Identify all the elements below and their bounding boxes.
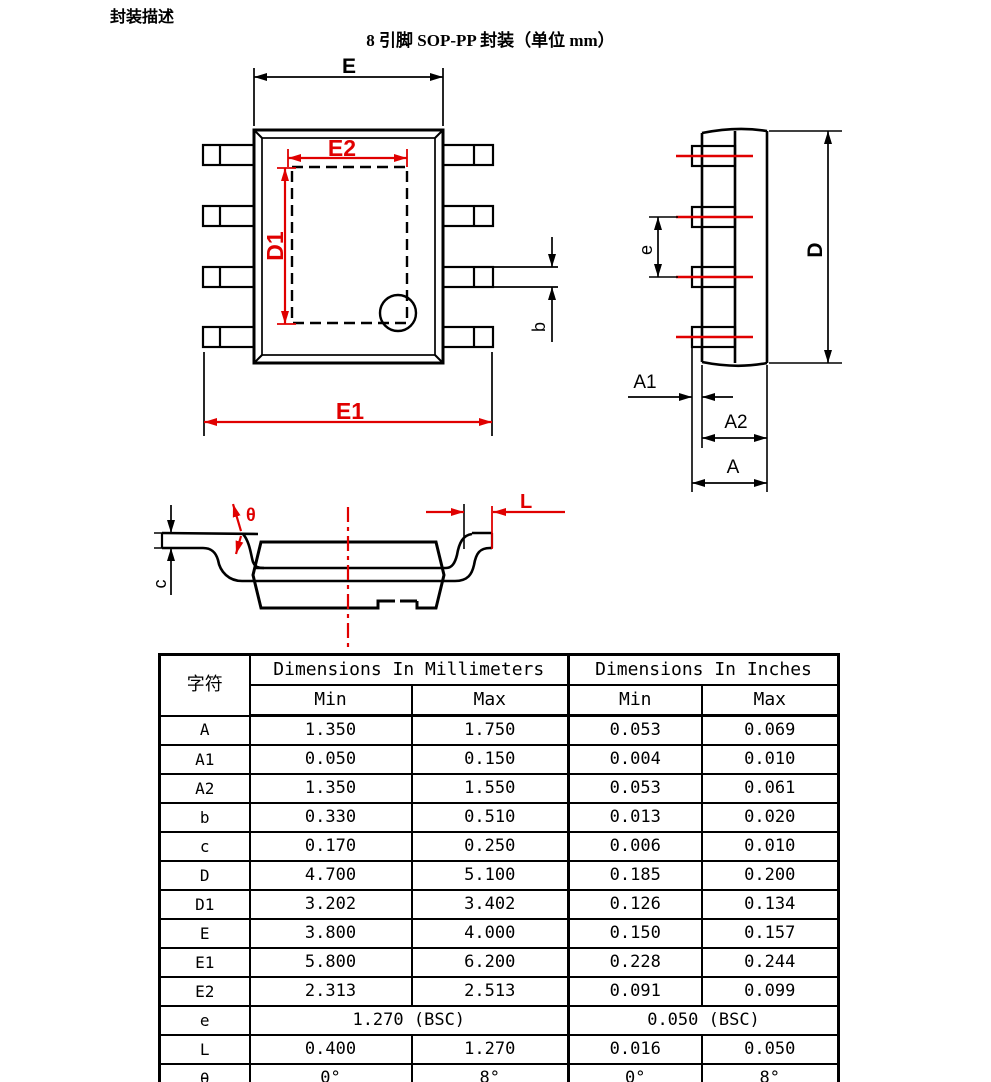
dimension-A1: A1 (628, 372, 733, 397)
value-cell: 3.402 (412, 890, 569, 919)
value-cell: 0.330 (250, 803, 412, 832)
left-pins (203, 145, 254, 347)
page-subtitle: 8 引脚 SOP-PP 封装（单位 mm） (0, 26, 981, 51)
col-header-mm-min: Min (250, 685, 412, 716)
value-cell: 0.013 (569, 803, 702, 832)
value-cell: 0° (569, 1064, 702, 1082)
pin-center-lines (676, 156, 753, 337)
value-cell: 0.244 (702, 948, 839, 977)
value-cell: 0.157 (702, 919, 839, 948)
symbol-cell: D1 (160, 890, 250, 919)
dim-label-e: e (636, 245, 656, 255)
value-cell: 0.050 (250, 745, 412, 774)
value-cell: 2.513 (412, 977, 569, 1006)
value-cell: 0.061 (702, 774, 839, 803)
top-view-drawing: E b (150, 50, 580, 450)
dimensions-table: 字符 Dimensions In Millimeters Dimensions … (158, 653, 840, 1082)
value-cell: 0.010 (702, 745, 839, 774)
value-cell: 0.053 (569, 774, 702, 803)
side-view-drawing: e D A1 A2 A (615, 115, 850, 500)
col-header-in-min: Min (569, 685, 702, 716)
value-cell-span: 0.050 (BSC) (569, 1006, 839, 1035)
right-lead (446, 533, 492, 581)
value-cell: 0.004 (569, 745, 702, 774)
table-row: E 3.800 4.000 0.150 0.157 (160, 919, 839, 948)
value-cell: 0.510 (412, 803, 569, 832)
dimension-E2: E2 (288, 135, 407, 167)
dim-label-A2: A2 (724, 412, 747, 433)
symbol-cell: E2 (160, 977, 250, 1006)
symbol-cell: e (160, 1006, 250, 1035)
table-row: L 0.400 1.270 0.016 0.050 (160, 1035, 839, 1064)
side-pins (692, 146, 735, 347)
value-cell: 1.550 (412, 774, 569, 803)
dim-label-E1: E1 (336, 398, 364, 424)
dimension-b: b (493, 237, 558, 342)
dim-label-E2: E2 (328, 135, 356, 161)
value-cell: 4.700 (250, 861, 412, 890)
symbol-cell: A2 (160, 774, 250, 803)
value-cell: 0.050 (702, 1035, 839, 1064)
left-lead (162, 533, 264, 581)
value-cell: 0.020 (702, 803, 839, 832)
dimension-theta: θ (233, 504, 256, 554)
symbol-cell: E1 (160, 948, 250, 977)
dimension-D: D (769, 131, 842, 363)
dim-label-D1: D1 (262, 231, 288, 261)
table-row: E1 5.800 6.200 0.228 0.244 (160, 948, 839, 977)
value-cell: 0° (250, 1064, 412, 1082)
value-cell: 0.185 (569, 861, 702, 890)
value-cell: 8° (702, 1064, 839, 1082)
col-header-mm-group: Dimensions In Millimeters (250, 655, 569, 686)
page-title: 封装描述 (110, 3, 174, 27)
col-header-symbol: 字符 (160, 655, 250, 716)
symbol-cell: E (160, 919, 250, 948)
symbol-cell: θ (160, 1064, 250, 1082)
table-row: A2 1.350 1.550 0.053 0.061 (160, 774, 839, 803)
value-cell: 0.091 (569, 977, 702, 1006)
value-cell: 1.350 (250, 774, 412, 803)
dim-label-theta: θ (246, 505, 256, 525)
value-cell: 0.150 (569, 919, 702, 948)
value-cell: 1.270 (412, 1035, 569, 1064)
dim-label-E: E (342, 55, 356, 78)
col-header-in-max: Max (702, 685, 839, 716)
value-cell: 3.202 (250, 890, 412, 919)
dimension-L: L (426, 491, 565, 549)
value-cell: 0.126 (569, 890, 702, 919)
symbol-cell: A1 (160, 745, 250, 774)
dimension-E1: E1 (204, 352, 492, 436)
dimension-A2: A2 (702, 412, 767, 438)
table-row: c 0.170 0.250 0.006 0.010 (160, 832, 839, 861)
symbol-cell: A (160, 716, 250, 746)
value-cell: 0.006 (569, 832, 702, 861)
dimension-A: A (692, 457, 767, 483)
symbol-cell: D (160, 861, 250, 890)
symbol-cell: b (160, 803, 250, 832)
value-cell: 1.350 (250, 716, 412, 746)
symbol-cell: c (160, 832, 250, 861)
table-row: b 0.330 0.510 0.013 0.020 (160, 803, 839, 832)
value-cell: 5.100 (412, 861, 569, 890)
value-cell: 0.200 (702, 861, 839, 890)
value-cell: 0.170 (250, 832, 412, 861)
value-cell: 0.053 (569, 716, 702, 746)
value-cell: 3.800 (250, 919, 412, 948)
dimension-e: e (636, 217, 678, 277)
value-cell: 6.200 (412, 948, 569, 977)
value-cell: 2.313 (250, 977, 412, 1006)
value-cell: 0.228 (569, 948, 702, 977)
value-cell: 1.750 (412, 716, 569, 746)
value-cell: 5.800 (250, 948, 412, 977)
dim-label-L: L (520, 491, 532, 513)
front-view-drawing: c (140, 485, 580, 660)
dim-label-c: c (150, 580, 170, 589)
col-header-in-group: Dimensions In Inches (569, 655, 839, 686)
table-row: D 4.700 5.100 0.185 0.200 (160, 861, 839, 890)
table-row: A1 0.050 0.150 0.004 0.010 (160, 745, 839, 774)
value-cell: 0.099 (702, 977, 839, 1006)
col-header-mm-max: Max (412, 685, 569, 716)
value-cell: 8° (412, 1064, 569, 1082)
value-cell: 0.010 (702, 832, 839, 861)
value-cell: 4.000 (412, 919, 569, 948)
pin1-indicator-circle (380, 295, 416, 331)
table-row-e: e 1.270 (BSC) 0.050 (BSC) (160, 1006, 839, 1035)
table-row: θ 0° 8° 0° 8° (160, 1064, 839, 1082)
table-row: E2 2.313 2.513 0.091 0.099 (160, 977, 839, 1006)
right-pins (443, 145, 493, 347)
value-cell: 0.134 (702, 890, 839, 919)
dim-label-b: b (529, 322, 549, 332)
dim-label-A1: A1 (633, 372, 656, 393)
value-cell: 0.250 (412, 832, 569, 861)
table-row: A 1.350 1.750 0.053 0.069 (160, 716, 839, 746)
value-cell: 0.150 (412, 745, 569, 774)
dim-label-D: D (804, 242, 827, 257)
value-cell-span: 1.270 (BSC) (250, 1006, 569, 1035)
dimension-c: c (150, 505, 180, 595)
dim-label-A: A (727, 457, 740, 478)
symbol-cell: L (160, 1035, 250, 1064)
thermal-pad-outline (292, 167, 407, 323)
value-cell: 0.016 (569, 1035, 702, 1064)
value-cell: 0.069 (702, 716, 839, 746)
dimension-E: E (254, 55, 443, 126)
value-cell: 0.400 (250, 1035, 412, 1064)
page: 封装描述 8 引脚 SOP-PP 封装（单位 mm） E (0, 0, 991, 1082)
table-row: D1 3.202 3.402 0.126 0.134 (160, 890, 839, 919)
